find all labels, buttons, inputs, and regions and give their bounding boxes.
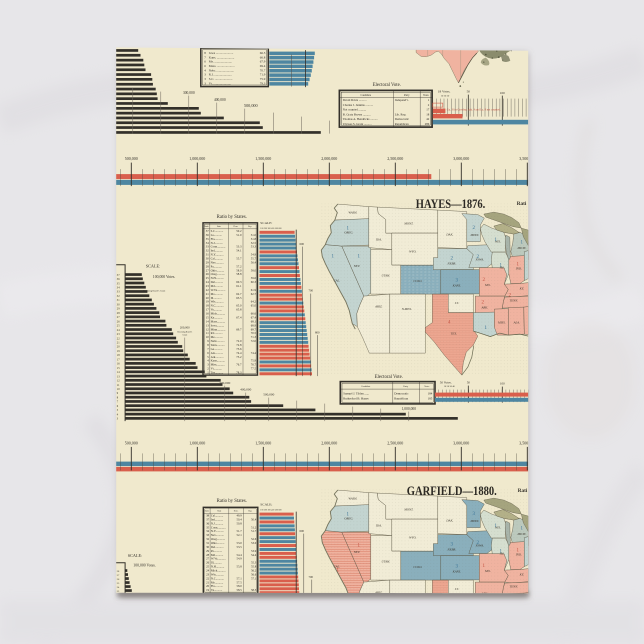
svg-text:79.3: 79.3: [260, 81, 266, 85]
svg-text:MINN.: MINN.: [470, 233, 480, 237]
svg-text:SCALE:: SCALE:: [146, 264, 160, 269]
svg-text:18: 18: [426, 112, 430, 116]
svg-text:ARIZ.: ARIZ.: [374, 305, 383, 309]
svg-text:Samuel J. Tilden ......: Samuel J. Tilden ......: [343, 391, 369, 395]
svg-text:69.7: 69.7: [236, 327, 242, 331]
svg-text:Ratio by States.: Ratio by States.: [217, 499, 247, 504]
svg-text:ARK.: ARK.: [480, 306, 488, 310]
svg-text:Charles J. Jenkins ..........: Charles J. Jenkins ..........: [343, 103, 374, 107]
svg-text:42: 42: [426, 117, 430, 121]
svg-text:185: 185: [428, 396, 433, 400]
svg-text:54.9: 54.9: [237, 557, 243, 561]
svg-text:70.7: 70.7: [260, 68, 266, 72]
svg-text:Candidate: Candidate: [361, 386, 370, 388]
svg-text:B. Gratz Brown ..........: B. Gratz Brown ..........: [343, 112, 371, 116]
svg-text:58.8: 58.8: [236, 272, 242, 276]
svg-text:62.7: 62.7: [251, 292, 257, 296]
svg-text:Rank: Rank: [204, 226, 208, 228]
svg-text:66.5: 66.5: [260, 51, 266, 55]
svg-text:Ga. 3 for Greeley; Ark. 4 and: Ga. 3 for Greeley; Ark. 4 and La. 8 not …: [447, 108, 501, 111]
svg-text:Me. ......................: Me. ......................: [209, 60, 232, 64]
svg-text:TEX.: TEX.: [451, 332, 458, 336]
svg-text:MINN.: MINN.: [470, 519, 480, 523]
svg-text:ALA.: ALA.: [513, 321, 521, 325]
svg-text:Electoral Vote.: Electoral Vote.: [375, 375, 403, 380]
svg-text:50: 50: [467, 90, 471, 94]
svg-text:50: 50: [467, 380, 471, 384]
svg-text:76.7: 76.7: [236, 363, 242, 367]
svg-text:100 200 300 400 500 600: 100 200 300 400 500 600: [260, 510, 281, 512]
svg-text:57.1: 57.1: [251, 576, 257, 580]
svg-text:52.1: 52.1: [237, 533, 243, 537]
svg-text:KY.: KY.: [519, 287, 524, 291]
svg-text:53.5: 53.5: [237, 545, 243, 549]
svg-text:IDA.: IDA.: [375, 238, 382, 242]
svg-text:184: 184: [428, 391, 433, 395]
svg-text:Dem.: Dem.: [234, 226, 239, 228]
svg-text:61.1: 61.1: [236, 284, 242, 288]
svg-text:Rep.: Rep.: [248, 511, 252, 513]
svg-text:I.T.: I.T.: [454, 301, 459, 305]
svg-text:KY.: KY.: [519, 573, 524, 577]
svg-text:DAK.: DAK.: [445, 519, 453, 523]
svg-text:NEBR.: NEBR.: [447, 548, 457, 552]
svg-text:MO.: MO.: [484, 569, 491, 573]
svg-text:TENN.: TENN.: [510, 585, 519, 589]
svg-text:60.3: 60.3: [251, 280, 257, 284]
svg-text:David Davis ..........: David Davis ..........: [343, 98, 367, 102]
svg-text:100 200 300 400 500 600: 100 200 300 400 500 600: [260, 228, 281, 230]
svg-text:65.0: 65.0: [251, 304, 257, 308]
svg-text:Vt. ......................: Vt. ......................: [209, 81, 231, 85]
svg-text:Returning Board’s Count: Returning Board’s Count: [143, 290, 165, 293]
svg-text:Electoral Vote.: Electoral Vote.: [373, 83, 401, 88]
svg-text:65.8: 65.8: [236, 308, 242, 312]
svg-text:MONT.: MONT.: [403, 222, 413, 226]
svg-text:Ratio by States.: Ratio by States.: [217, 215, 247, 220]
svg-text:10 20 30: 10 20 30: [441, 95, 450, 98]
svg-text:Rep.: Rep.: [248, 226, 252, 228]
svg-text:75.2: 75.2: [236, 355, 242, 359]
svg-text:74.4: 74.4: [251, 351, 257, 355]
svg-text:50.4: 50.4: [251, 517, 257, 521]
svg-text:COLO.: COLO.: [413, 565, 422, 569]
svg-text:SCALE:: SCALE:: [128, 553, 142, 558]
svg-text:55.7: 55.7: [236, 257, 242, 261]
svg-text:MO.: MO.: [484, 283, 491, 287]
svg-text:TENN.: TENN.: [510, 299, 519, 303]
svg-text:Returning Board’s: Returning Board’s: [177, 331, 192, 334]
svg-text:Votes: Votes: [423, 94, 429, 97]
svg-text:700: 700: [309, 289, 314, 293]
svg-text:UTAH.: UTAH.: [381, 274, 390, 278]
svg-text:Not counted ..........: Not counted ..........: [343, 108, 367, 112]
svg-text:S.C. ......................: S.C. ......................: [209, 77, 233, 81]
svg-text:51.0: 51.0: [236, 233, 242, 237]
svg-text:KANS.: KANS.: [452, 570, 462, 574]
svg-text:18 Votes.: 18 Votes.: [438, 90, 451, 94]
svg-text:WASH.: WASH.: [348, 497, 357, 501]
svg-text:MICH.: MICH.: [516, 532, 526, 536]
svg-text:Rank: Rank: [205, 511, 209, 513]
svg-text:78.3: 78.3: [236, 371, 242, 375]
svg-text:WASH.: WASH.: [348, 211, 357, 215]
svg-text:WYO.: WYO.: [409, 250, 417, 254]
svg-text:SCALE:: SCALE:: [260, 503, 272, 507]
svg-text:100: 100: [500, 91, 505, 95]
svg-text:CAL.: CAL.: [334, 279, 341, 283]
svg-text:Nebr. ......................: Nebr. ......................: [209, 68, 234, 72]
svg-text:KANS.: KANS.: [452, 284, 462, 288]
svg-text:Democratic: Democratic: [395, 117, 410, 121]
svg-text:10 20 30 40: 10 20 30 40: [444, 386, 456, 388]
svg-text:50.8: 50.8: [237, 521, 243, 525]
svg-text:54.4: 54.4: [251, 553, 257, 557]
svg-text:50 Votes.: 50 Votes.: [440, 380, 452, 384]
svg-text:I.T.: I.T.: [454, 587, 459, 591]
svg-text:N.MEX.: N.MEX.: [401, 307, 412, 311]
svg-text:51.7: 51.7: [251, 529, 257, 533]
svg-text:Tex...........: Tex...........: [211, 371, 224, 375]
svg-text:67.9: 67.9: [260, 60, 266, 64]
svg-text:SCALE:: SCALE:: [260, 221, 272, 225]
svg-text:17: 17: [426, 108, 430, 112]
svg-text:77.5: 77.5: [251, 367, 257, 371]
svg-text:67.4: 67.4: [236, 316, 242, 320]
svg-text:Iowa ......................: Iowa ......................: [209, 51, 234, 55]
svg-text:Independ’t.: Independ’t.: [395, 98, 409, 102]
svg-text:53.3: 53.3: [251, 245, 257, 249]
svg-text:NEV.: NEV.: [353, 550, 361, 554]
svg-text:DAK.: DAK.: [445, 233, 453, 237]
svg-text:Rutherford B. Hayes: Rutherford B. Hayes: [343, 396, 369, 400]
svg-text:UTAH.: UTAH.: [381, 560, 390, 564]
svg-text:MISS.: MISS.: [497, 321, 506, 325]
svg-text:72.0: 72.0: [251, 339, 257, 343]
svg-text:700: 700: [309, 575, 314, 579]
svg-text:COLO.: COLO.: [413, 279, 422, 283]
svg-text:WYO.: WYO.: [409, 536, 417, 540]
svg-text:NEV.: NEV.: [353, 264, 361, 268]
svg-text:53.0: 53.0: [251, 541, 257, 545]
svg-text:NEBR.: NEBR.: [447, 262, 457, 266]
svg-text:286: 286: [425, 122, 430, 126]
svg-text:Party: Party: [403, 386, 409, 388]
svg-text:MICH.: MICH.: [516, 246, 526, 250]
svg-text:54.1: 54.1: [236, 249, 242, 253]
svg-text:Lib. Rep.: Lib. Rep.: [395, 112, 407, 116]
svg-text:IDA.: IDA.: [375, 524, 382, 528]
svg-text:MONT.: MONT.: [403, 508, 413, 512]
svg-text:100: 100: [500, 382, 505, 386]
svg-text:Dem.: Dem.: [234, 511, 239, 513]
svg-text:58.5: 58.5: [251, 588, 257, 592]
svg-text:State: State: [217, 226, 221, 228]
svg-text:Candidate: Candidate: [361, 94, 372, 97]
svg-text:75.9: 75.9: [260, 77, 266, 81]
svg-text:Republican: Republican: [394, 396, 408, 400]
svg-text:63.5: 63.5: [236, 296, 242, 300]
svg-text:Democratic: Democratic: [394, 391, 409, 395]
svg-text:Ulysses S. Grant ..........: Ulysses S. Grant ..........: [343, 122, 372, 126]
svg-text:Republican: Republican: [395, 122, 409, 126]
svg-text:55.8: 55.8: [237, 565, 243, 569]
svg-text:Count: Count: [182, 335, 187, 337]
svg-text:58.0: 58.0: [251, 268, 257, 272]
svg-text:Votes: Votes: [424, 386, 429, 388]
svg-text:600: 600: [300, 529, 305, 533]
svg-text:600: 600: [300, 242, 305, 246]
svg-text:56.4: 56.4: [251, 260, 257, 264]
svg-text:800: 800: [315, 330, 320, 334]
svg-text:Thomas A. Hendricks ..........: Thomas A. Hendricks ..........: [343, 117, 378, 121]
svg-text:Party: Party: [404, 94, 410, 97]
svg-text:State: State: [217, 511, 221, 513]
